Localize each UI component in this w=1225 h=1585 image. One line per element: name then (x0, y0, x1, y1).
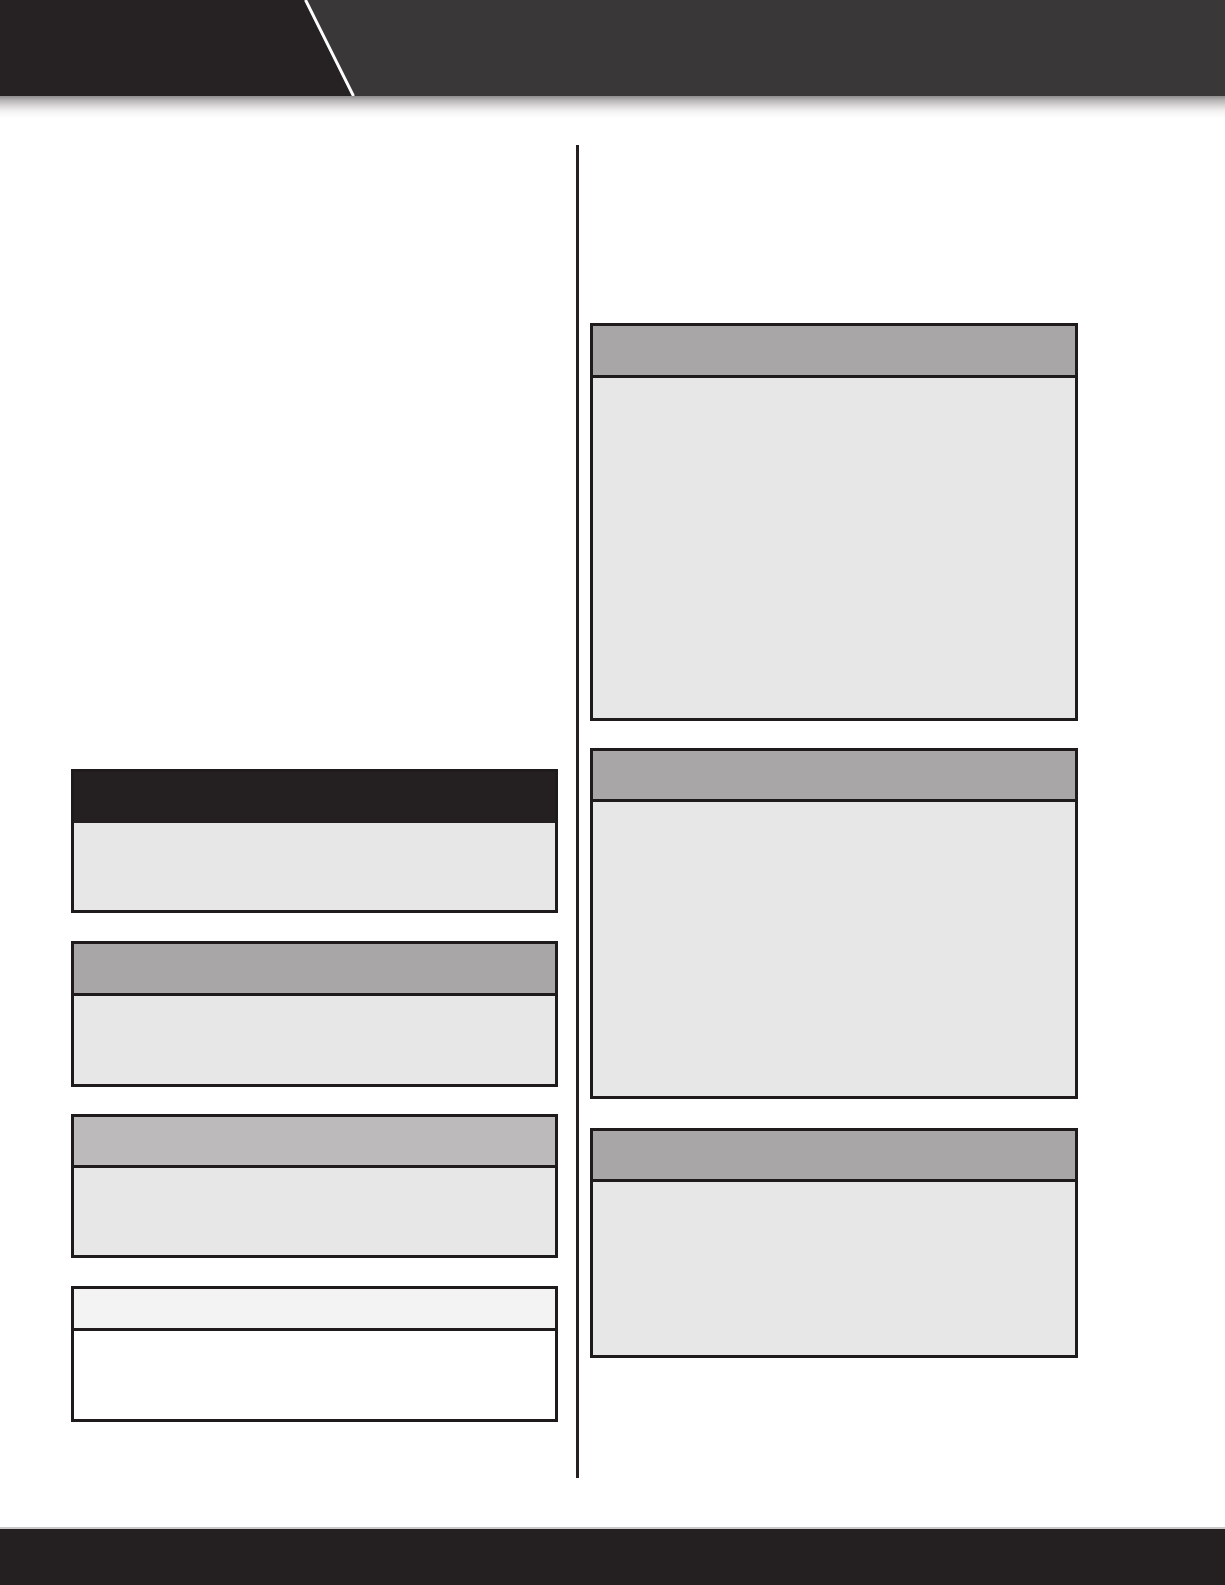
left-panel-3-body (74, 1168, 555, 1255)
footer-bar (0, 1527, 1225, 1585)
left-panel-4-body (74, 1331, 555, 1419)
left-panel-3 (71, 1114, 558, 1258)
column-divider-rule (576, 145, 579, 1478)
document-page (0, 0, 1225, 1585)
left-panel-3-header (74, 1117, 555, 1168)
right-panel-2-body (593, 802, 1075, 1096)
left-panel-4 (71, 1286, 558, 1422)
left-panel-1-body (74, 823, 555, 910)
left-panel-4-header (74, 1289, 555, 1331)
content-area (0, 0, 1225, 1585)
right-panel-1 (590, 323, 1078, 721)
left-panel-2 (71, 941, 558, 1087)
left-panel-1-header (74, 772, 555, 823)
right-panel-2 (590, 748, 1078, 1099)
right-panel-3-header (593, 1131, 1075, 1182)
right-panel-3-body (593, 1182, 1075, 1355)
right-panel-2-header (593, 751, 1075, 802)
left-panel-2-header (74, 944, 555, 996)
right-panel-3 (590, 1128, 1078, 1358)
right-panel-1-body (593, 378, 1075, 718)
left-panel-1 (71, 769, 558, 913)
right-panel-1-header (593, 326, 1075, 378)
left-panel-2-body (74, 996, 555, 1084)
